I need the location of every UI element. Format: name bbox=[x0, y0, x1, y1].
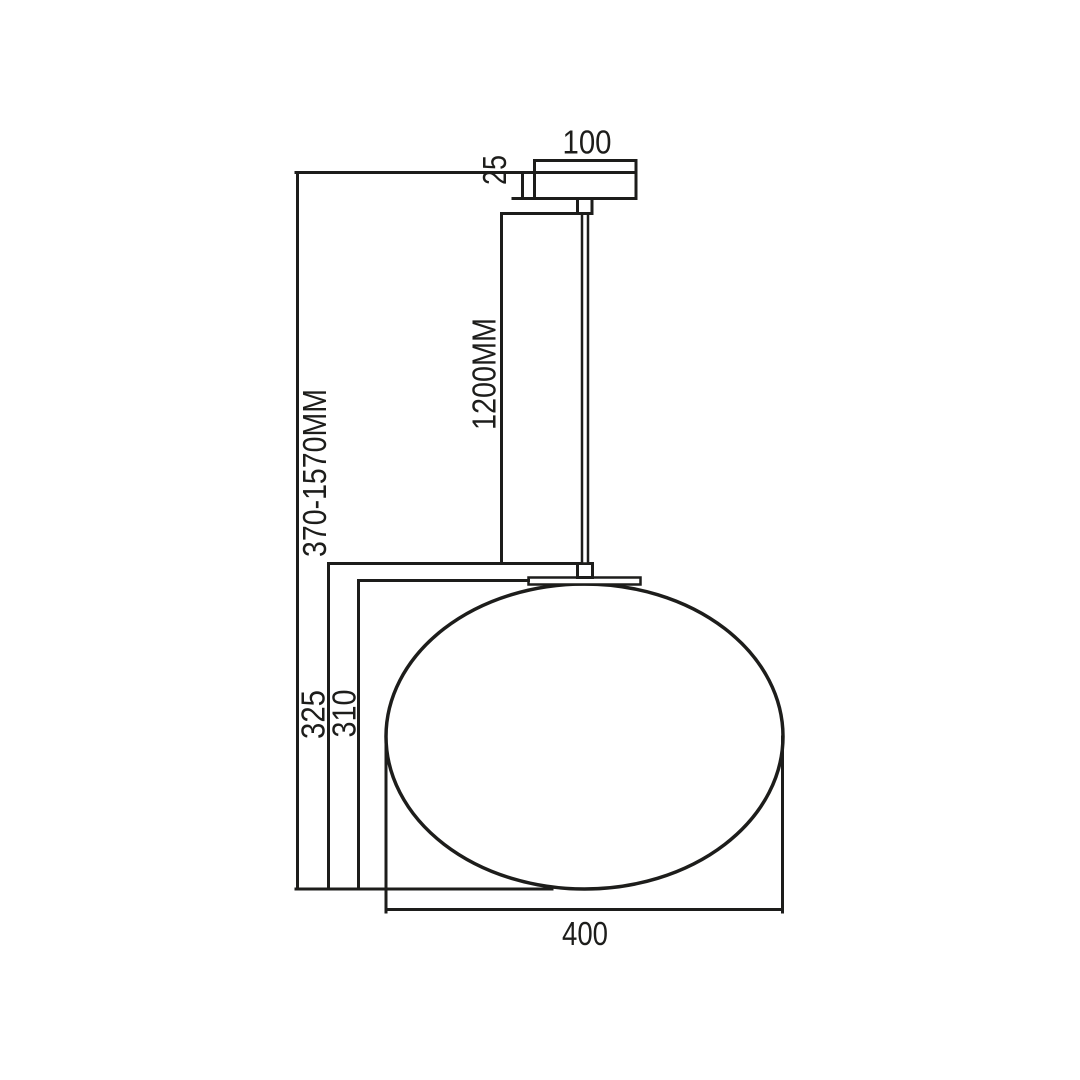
canopy-neck bbox=[578, 199, 593, 214]
suspension-rod bbox=[582, 214, 588, 564]
dim-label-canopy-width: 100 bbox=[563, 124, 612, 161]
dimension-drawing-svg: 100 25 1200MM 370-1570MM 325 310 400 bbox=[0, 0, 1080, 1080]
dim-label-rod-length: 1200MM bbox=[466, 318, 503, 430]
dim-label-shade-width: 400 bbox=[562, 915, 608, 952]
dim-label-overall-height: 370-1570MM bbox=[296, 389, 333, 557]
technical-drawing: 100 25 1200MM 370-1570MM 325 310 400 bbox=[0, 0, 1080, 1080]
dim-label-shade-height: 310 bbox=[326, 690, 363, 738]
rod-connector bbox=[578, 564, 593, 578]
canopy-outline bbox=[535, 161, 637, 199]
dim-label-canopy-height: 25 bbox=[476, 155, 513, 185]
globe-shade bbox=[386, 584, 783, 889]
